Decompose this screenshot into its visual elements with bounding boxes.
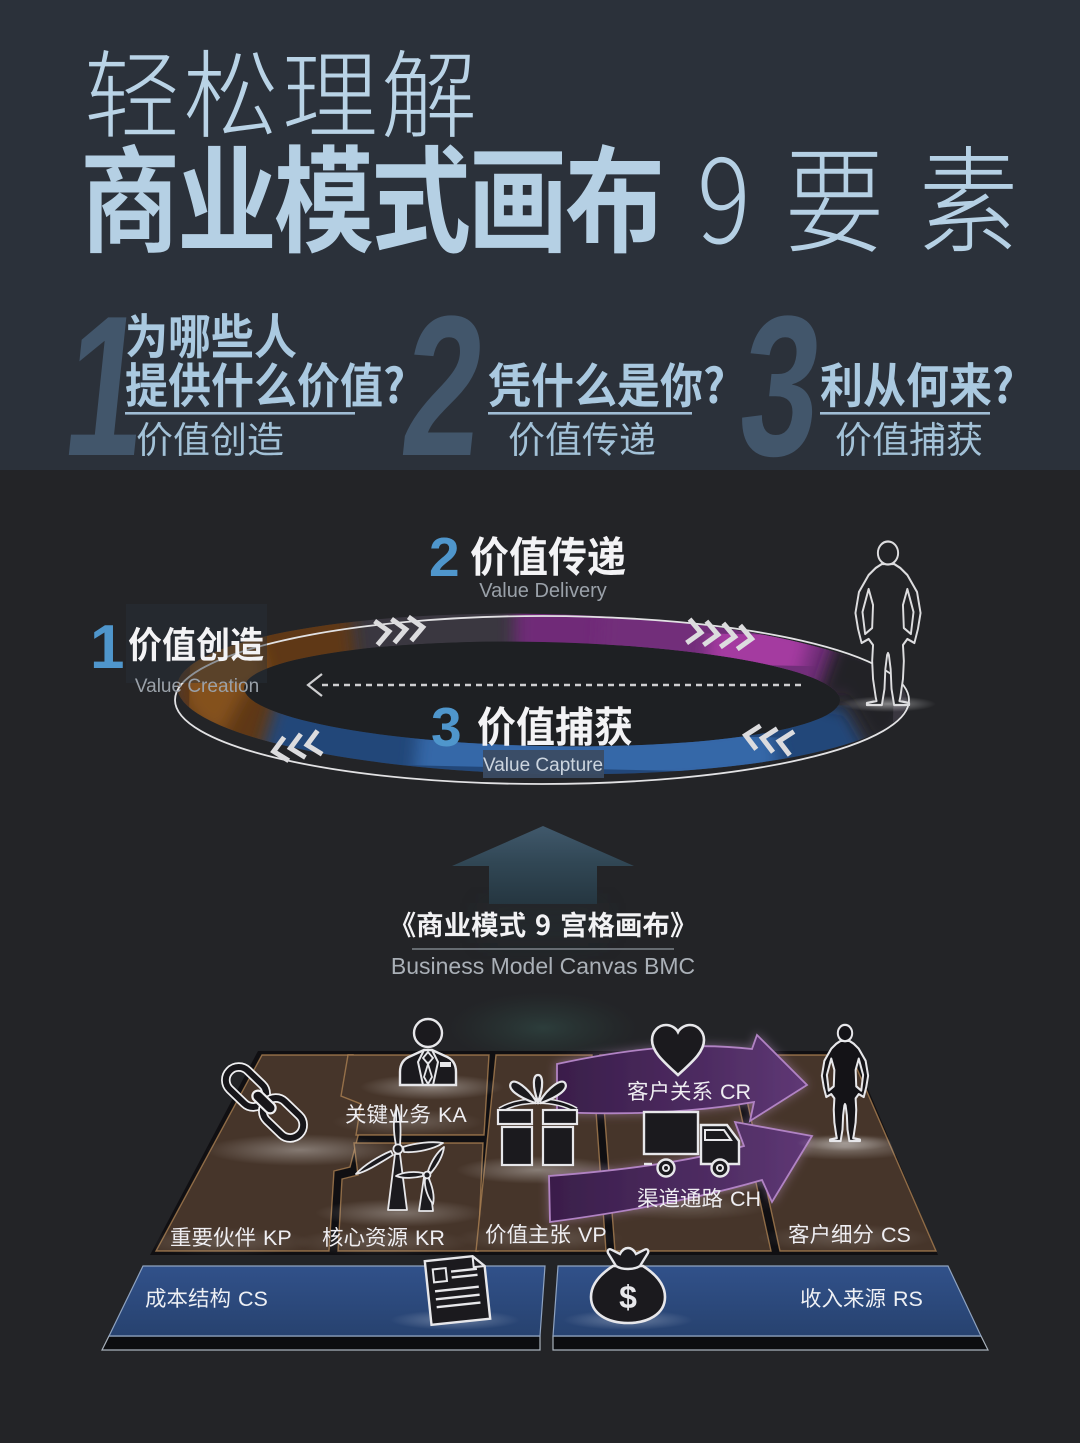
svg-text:Value Creation: Value Creation (135, 676, 259, 697)
svg-text:Value Delivery: Value Delivery (479, 580, 606, 602)
svg-text:$: $ (619, 1279, 637, 1315)
svg-text:3: 3 (431, 696, 462, 758)
svg-text:Business Model Canvas BMC: Business Model Canvas BMC (391, 953, 695, 979)
svg-text:RS: RS (893, 1287, 923, 1311)
svg-text:Value Capture: Value Capture (483, 755, 603, 776)
svg-text:1: 1 (90, 613, 124, 682)
svg-text:VP: VP (578, 1223, 607, 1247)
svg-text:CS: CS (881, 1223, 911, 1247)
svg-text:CR: CR (720, 1080, 751, 1104)
svg-text:KR: KR (415, 1226, 445, 1250)
svg-text:CH: CH (730, 1187, 761, 1211)
svg-text:KA: KA (438, 1103, 467, 1127)
svg-text:2: 2 (429, 526, 460, 588)
svg-text:KP: KP (263, 1226, 292, 1250)
svg-text:CS: CS (238, 1287, 268, 1311)
